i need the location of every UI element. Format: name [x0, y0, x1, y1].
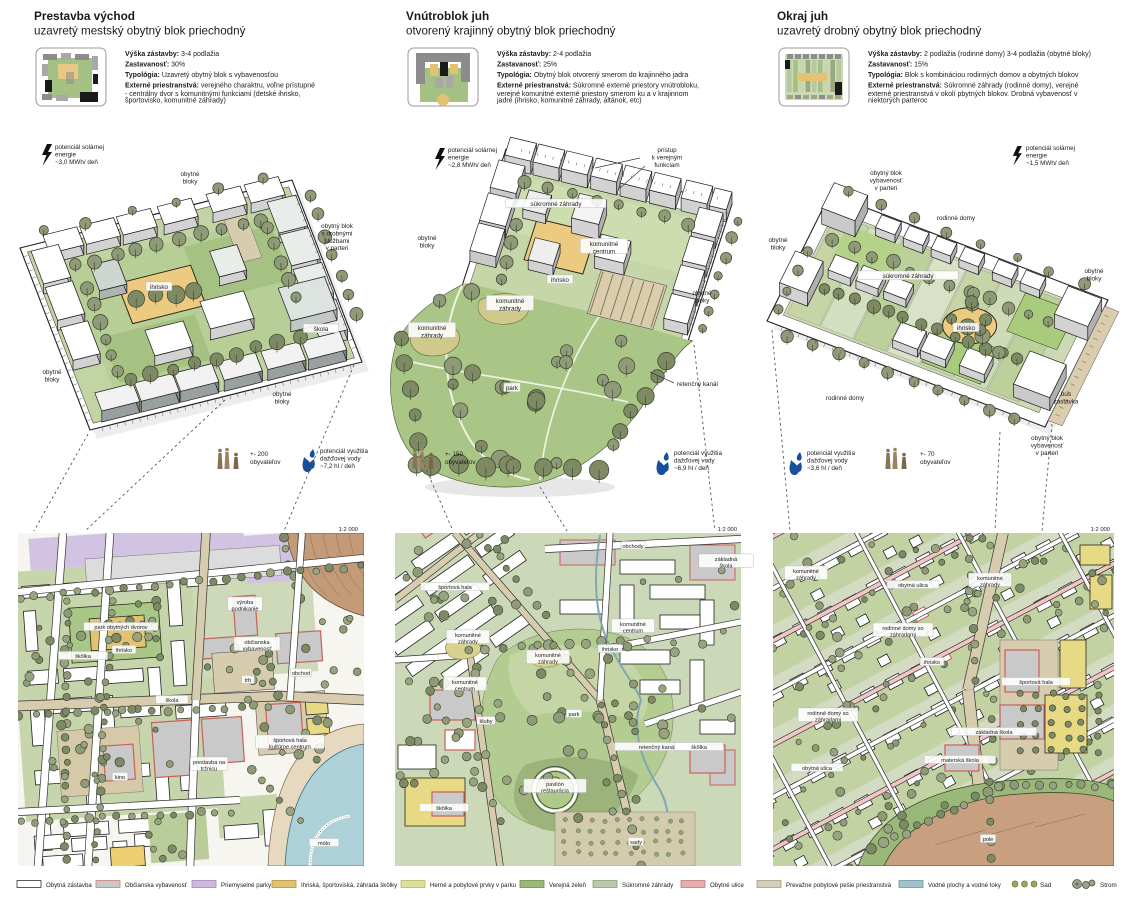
svg-text:mólo: mólo — [318, 841, 330, 847]
svg-text:základná: základná — [715, 557, 738, 563]
svg-text:centrum: centrum — [455, 687, 476, 693]
svg-text:obytné: obytné — [1085, 268, 1104, 275]
svg-text:komunitné: komunitné — [977, 576, 1003, 582]
svg-text:športovisko, komunitné záhrady: športovisko, komunitné záhrady) — [125, 97, 226, 104]
svg-text:Sad: Sad — [1040, 882, 1052, 889]
svg-text:Výška zástavby: 2 podlažia (r: Výška zástavby: 2 podlažia (rodinné domy… — [868, 51, 1091, 58]
svg-text:~6,9 hl / deň: ~6,9 hl / deň — [674, 465, 709, 472]
svg-text:ihrisko: ihrisko — [116, 648, 132, 654]
svg-text:trh: trh — [245, 678, 252, 684]
svg-text:Výška zástavby: 3-4 podlažia: Výška zástavby: 3-4 podlažia — [125, 51, 219, 58]
svg-text:záhrady: záhrady — [499, 305, 522, 312]
svg-text:uzavretý drobný obytný blok pr: uzavretý drobný obytný blok priechodný — [777, 25, 981, 38]
svg-text:vybavenosť: vybavenosť — [870, 177, 903, 184]
svg-text:bloky: bloky — [275, 398, 291, 405]
svg-text:s drobnými: s drobnými — [322, 230, 353, 237]
svg-text:pavilón: pavilón — [546, 782, 564, 788]
svg-text:obytná ulica: obytná ulica — [802, 766, 833, 772]
svg-text:športová hala: športová hala — [273, 738, 307, 744]
svg-text:bloky: bloky — [183, 178, 199, 185]
svg-text:Strom: Strom — [1100, 882, 1117, 889]
svg-text:~3,0 MWh/ deň: ~3,0 MWh/ deň — [55, 159, 98, 166]
svg-text:škôlka: škôlka — [691, 745, 708, 751]
svg-text:obytné: obytné — [769, 237, 788, 244]
svg-text:komunitné: komunitné — [496, 298, 525, 305]
svg-text:+- 200: +- 200 — [250, 451, 269, 458]
svg-text:rodinné domy: rodinné domy — [826, 395, 865, 402]
svg-text:súkromné záhrady: súkromné záhrady — [531, 201, 583, 208]
svg-text:záhrady: záhrady — [796, 576, 816, 582]
svg-text:škôlka: škôlka — [436, 806, 453, 812]
svg-text:materská škola: materská škola — [941, 758, 980, 764]
svg-text:obytné: obytné — [693, 290, 712, 297]
svg-text:centrum: centrum — [593, 248, 615, 255]
svg-text:1:2 000: 1:2 000 — [339, 527, 358, 533]
svg-text:komunitné: komunitné — [452, 680, 478, 686]
svg-text:energie: energie — [55, 152, 77, 159]
svg-text:ihrisko: ihrisko — [150, 284, 168, 291]
svg-text:bloky: bloky — [45, 376, 61, 383]
svg-text:športová hala: športová hala — [438, 585, 472, 591]
svg-text:Verejná zeleň: Verejná zeleň — [549, 882, 586, 889]
svg-text:~3,6 hl / deň: ~3,6 hl / deň — [807, 465, 842, 472]
svg-text:Zastavanosť: 15%: Zastavanosť: 15% — [868, 62, 928, 69]
svg-text:park: park — [569, 712, 580, 718]
svg-text:bloky: bloky — [771, 244, 787, 251]
svg-text:komunitné: komunitné — [793, 569, 819, 575]
svg-text:v parteri: v parteri — [326, 245, 349, 252]
svg-text:bloky: bloky — [1087, 275, 1103, 282]
svg-text:park obytných dvorov: park obytných dvorov — [94, 625, 147, 631]
svg-text:Herné a pobytové prvky v parku: Herné a pobytové prvky v parku — [430, 882, 516, 889]
svg-text:jadre (ihrisko, komunitné záhr: jadre (ihrisko, komunitné záhrady, altán… — [496, 97, 642, 104]
svg-text:v parteri: v parteri — [875, 185, 898, 192]
svg-text:centrum: centrum — [623, 629, 644, 635]
svg-text:1:2 000: 1:2 000 — [1091, 527, 1110, 533]
svg-text:sady: sady — [630, 840, 642, 846]
svg-text:~1,5 MWh/ deň: ~1,5 MWh/ deň — [1026, 160, 1069, 167]
svg-text:Externé priestranstvá: Súkrom: Externé priestranstvá: Súkromné externé … — [497, 83, 699, 90]
svg-text:obchody: obchody — [622, 544, 643, 550]
svg-text:vybavenosť: vybavenosť — [243, 647, 273, 653]
svg-text:ihrisko: ihrisko — [602, 647, 618, 653]
svg-text:funkciam: funkciam — [654, 162, 679, 169]
svg-text:Súkromné záhrady: Súkromné záhrady — [622, 882, 674, 889]
svg-text:potenciál solárnej: potenciál solárnej — [1026, 145, 1075, 152]
svg-text:potenciál využitia: potenciál využitia — [320, 448, 368, 455]
svg-text:niektorých parteroc: niektorých parteroc — [868, 97, 928, 104]
svg-text:energie: energie — [1026, 153, 1048, 160]
svg-text:službami: službami — [325, 238, 350, 245]
svg-text:záhrady: záhrady — [538, 660, 558, 666]
svg-text:obytné: obytné — [181, 171, 200, 178]
svg-text:Typológia: Uzavretý obytný bl: Typológia: Uzavretý obytný blok s vybave… — [125, 72, 278, 79]
svg-text:Obytné ulice: Obytné ulice — [710, 882, 744, 889]
svg-text:Okraj juh: Okraj juh — [777, 9, 828, 23]
svg-text:komunitné: komunitné — [590, 241, 619, 248]
svg-text:občianska: občianska — [244, 640, 270, 646]
svg-text:tržnicu: tržnicu — [201, 767, 217, 773]
svg-text:komunitné: komunitné — [620, 622, 646, 628]
svg-text:obytný blok: obytný blok — [1031, 435, 1064, 442]
svg-text:obyvateľov: obyvateľov — [920, 459, 951, 466]
svg-text:+- 150: +- 150 — [445, 451, 464, 458]
svg-text:dažďovej vody: dažďovej vody — [320, 456, 361, 463]
svg-text:obytné: obytné — [418, 235, 437, 242]
svg-text:škola: škola — [719, 564, 733, 570]
svg-text:~7,2 hl / deň: ~7,2 hl / deň — [320, 463, 355, 470]
svg-text:Zastavanosť: 25%: Zastavanosť: 25% — [497, 62, 557, 69]
svg-text:bloky: bloky — [420, 242, 436, 249]
svg-text:kultúrne centrum: kultúrne centrum — [269, 745, 311, 751]
svg-text:Externé priestranstvá: Súkrom: Externé priestranstvá: Súkromné záhrady … — [868, 83, 1079, 90]
svg-text:otvorený krajinný obytný blok: otvorený krajinný obytný blok priechodný — [406, 25, 616, 38]
svg-text:športová hala: športová hala — [1019, 680, 1053, 686]
svg-text:Vnútroblok juh: Vnútroblok juh — [406, 9, 489, 23]
svg-text:rodinné domy so: rodinné domy so — [882, 626, 923, 632]
svg-text:rodinné domy so: rodinné domy so — [807, 711, 848, 717]
svg-text:1:2 000: 1:2 000 — [718, 527, 737, 533]
svg-text:súkromné záhrady: súkromné záhrady — [883, 273, 935, 280]
svg-text:kluby: kluby — [479, 719, 492, 725]
svg-text:dažďovej vody: dažďovej vody — [807, 458, 848, 465]
svg-text:komunitné: komunitné — [455, 633, 481, 639]
svg-text:záhradami: záhradami — [890, 633, 916, 639]
svg-text:obchod: obchod — [292, 671, 310, 677]
svg-text:+- 70: +- 70 — [920, 451, 935, 458]
svg-text:záhrady: záhrady — [421, 332, 444, 339]
svg-text:záhrady: záhrady — [980, 583, 1000, 589]
svg-text:Prevažne pobytové pešie priest: Prevažne pobytové pešie priestranstvá — [786, 882, 892, 889]
svg-text:k verejným: k verejným — [652, 154, 682, 161]
svg-text:obyvateľov: obyvateľov — [445, 459, 476, 466]
svg-text:kino: kino — [115, 775, 125, 781]
svg-text:komunitné: komunitné — [418, 325, 447, 332]
svg-text:Prestavba východ: Prestavba východ — [34, 9, 135, 23]
svg-text:Typológia: Obytný blok otvore: Typológia: Obytný blok otvorený smerom d… — [497, 72, 688, 79]
svg-text:rodinné domy: rodinné domy — [937, 215, 976, 222]
svg-text:Občianska vybavenosť: Občianska vybavenosť — [125, 882, 188, 889]
svg-text:pole: pole — [983, 837, 994, 843]
svg-text:retenčný kanál: retenčný kanál — [677, 381, 718, 388]
svg-text:prístup: prístup — [657, 147, 677, 154]
svg-text:Typológia: Blok s kombináciou: Typológia: Blok s kombináciou rodinných … — [868, 72, 1079, 79]
svg-text:potenciál využitia: potenciál využitia — [807, 450, 855, 457]
svg-text:obyvateľov: obyvateľov — [250, 459, 281, 466]
svg-text:Vodné plochy a vodné toky: Vodné plochy a vodné toky — [928, 882, 1002, 889]
svg-text:potenciál využitia: potenciál využitia — [674, 450, 722, 457]
svg-text:bus: bus — [1061, 391, 1071, 398]
svg-text:komunitné: komunitné — [535, 653, 561, 659]
svg-text:Ihriská, športoviská, záhrada: Ihriská, športoviská, záhrada škôlky — [301, 882, 398, 889]
svg-text:ihrisko: ihrisko — [551, 277, 569, 284]
svg-text:~2,8 MWh/ deň: ~2,8 MWh/ deň — [448, 162, 491, 169]
svg-text:potenciál solárnej: potenciál solárnej — [55, 144, 104, 151]
svg-text:základná škola: základná škola — [975, 730, 1013, 736]
svg-text:zastávka: zastávka — [1054, 398, 1079, 405]
svg-text:bloky: bloky — [695, 297, 711, 304]
svg-text:prestavba na: prestavba na — [193, 760, 226, 766]
svg-text:škôlka: škôlka — [75, 654, 92, 660]
svg-text:reštaurácia: reštaurácia — [541, 789, 570, 795]
svg-text:dažďovej vody: dažďovej vody — [674, 458, 715, 465]
svg-text:Priemyselné parky: Priemyselné parky — [221, 882, 272, 889]
svg-text:park: park — [506, 385, 519, 392]
svg-text:škola: škola — [314, 326, 329, 333]
svg-text:obytné: obytné — [43, 369, 62, 376]
svg-text:retenčný kanál: retenčný kanál — [639, 745, 675, 751]
svg-text:obytná ulica: obytná ulica — [898, 583, 929, 589]
svg-text:výroba: výroba — [237, 600, 255, 606]
svg-text:Obytná zástavba: Obytná zástavba — [46, 882, 92, 889]
svg-text:obytný blok: obytný blok — [870, 170, 903, 177]
svg-text:Výška zástavby: 2-4 podlažia: Výška zástavby: 2-4 podlažia — [497, 51, 591, 58]
svg-text:obytný blok: obytný blok — [321, 223, 354, 230]
svg-text:energie: energie — [448, 155, 470, 162]
svg-text:Externé priestranstvá: verejn: Externé priestranstvá: verejného charakt… — [125, 83, 315, 90]
svg-text:podnikanie: podnikanie — [231, 607, 258, 613]
svg-text:potenciál solárnej: potenciál solárnej — [448, 147, 497, 154]
svg-text:záhradami: záhradami — [815, 718, 841, 724]
svg-text:škola: škola — [165, 698, 179, 704]
svg-text:obytné: obytné — [273, 391, 292, 398]
svg-text:záhrady: záhrady — [458, 640, 478, 646]
svg-text:uzavretý mestský obytný blok p: uzavretý mestský obytný blok priechodný — [34, 25, 246, 38]
svg-text:v parteri: v parteri — [1036, 450, 1059, 457]
svg-text:ihrisko: ihrisko — [924, 660, 940, 666]
svg-text:vybavenosť: vybavenosť — [1031, 442, 1064, 449]
svg-text:ihrisko: ihrisko — [957, 325, 975, 332]
svg-text:Zastavanosť: 30%: Zastavanosť: 30% — [125, 62, 185, 69]
